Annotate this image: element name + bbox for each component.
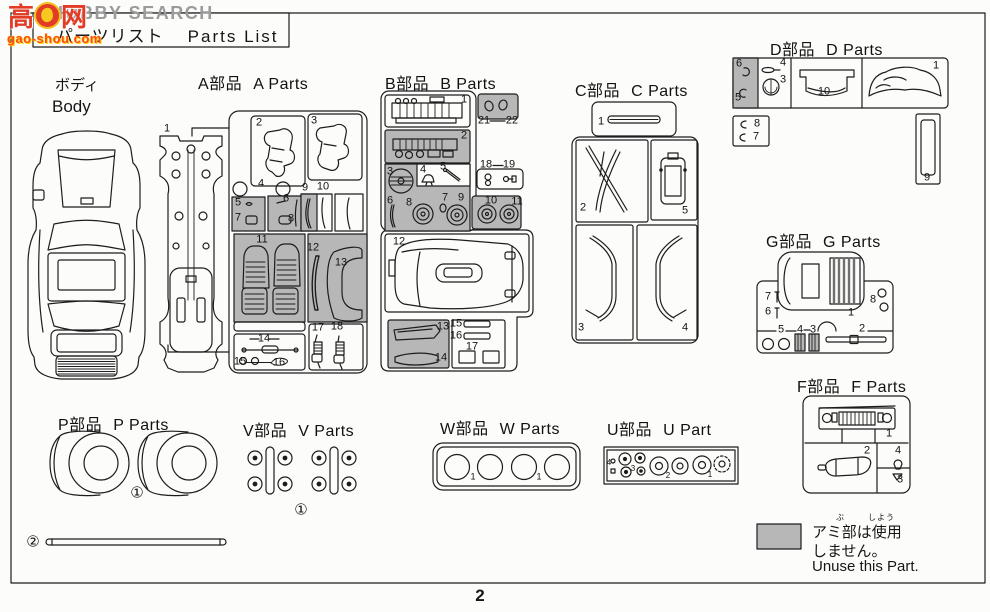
- section-title-v: V部品V Parts: [243, 417, 354, 441]
- gaoshou-logo-watermark: 高网: [8, 2, 87, 30]
- sprue-f-drawing: [803, 396, 910, 493]
- body-title-en: Body: [52, 96, 99, 118]
- sprue-d-drawing: [733, 58, 948, 184]
- logo-ball-icon: [34, 2, 61, 29]
- section-title-a: A部品A Parts: [198, 70, 308, 94]
- v-parts-drawing: [248, 447, 356, 494]
- u-parts-drawing: [604, 447, 738, 484]
- legend-line-1: アミ部は使用: [812, 521, 902, 542]
- section-title-g: G部品G Parts: [766, 228, 881, 252]
- page-title-en: Parts List: [188, 27, 279, 46]
- legend-swatch: [757, 524, 801, 549]
- section-title-b: B部品B Parts: [385, 70, 496, 94]
- body-title-jp: ボディ: [55, 76, 99, 96]
- logo-kanji-right: 网: [61, 2, 87, 32]
- sprue-a-drawing: [160, 111, 367, 373]
- page-number: 2: [470, 586, 490, 606]
- section-title-body: ボディ Body: [52, 76, 99, 118]
- section-title-w: W部品W Parts: [440, 415, 560, 439]
- legend-line-3: Unuse this Part.: [812, 558, 919, 575]
- gaoshou-domain-watermark: gao-shou.com: [7, 31, 102, 46]
- body-car-drawing: [28, 131, 145, 379]
- section-title-p: P部品P Parts: [58, 411, 169, 435]
- sprue-g-drawing: [757, 252, 893, 353]
- sprue-b-drawing: [381, 91, 533, 371]
- section-title-u: U部品U Part: [607, 416, 711, 440]
- sprue-c-drawing: [572, 102, 698, 343]
- w-parts-drawing: [433, 443, 580, 490]
- section-title-c: C部品C Parts: [575, 77, 688, 101]
- p-parts-drawing: [46, 431, 226, 545]
- section-title-f: F部品F Parts: [797, 373, 906, 397]
- logo-kanji-left: 高: [8, 2, 34, 32]
- section-title-d: D部品D Parts: [770, 36, 883, 60]
- parts-list-page: パーツリストParts List ボディ Body A部品A Parts B部品…: [0, 0, 990, 612]
